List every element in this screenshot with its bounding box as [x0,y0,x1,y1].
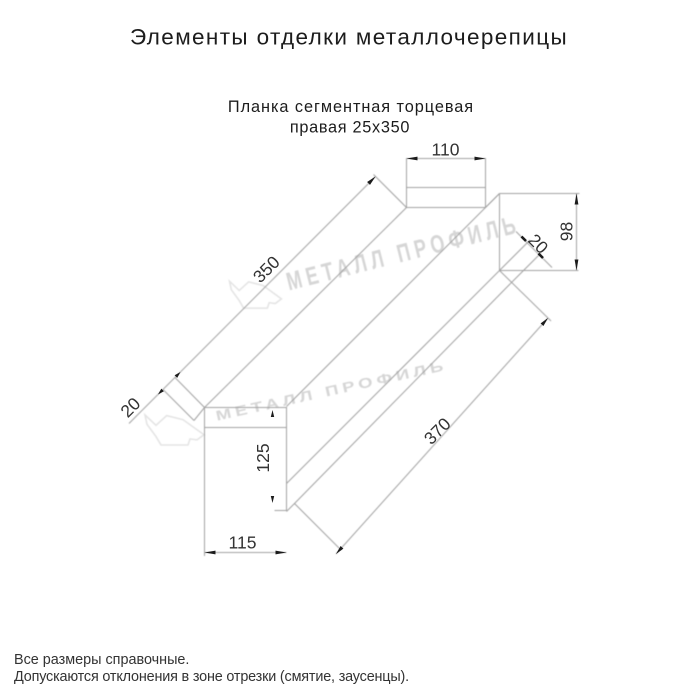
svg-text:правая 25х350: правая 25х350 [290,119,410,137]
svg-text:Все размеры справочные.: Все размеры справочные. [14,652,189,668]
svg-text:110: 110 [432,139,460,159]
svg-text:Допускаются отклонения в зоне: Допускаются отклонения в зоне отрезки (с… [14,669,409,685]
svg-text:125: 125 [253,443,273,472]
svg-text:370: 370 [420,413,455,448]
svg-text:20: 20 [524,230,552,258]
svg-text:350: 350 [249,252,284,287]
svg-text:МЕТАЛЛ ПРОФИЛЬ: МЕТАЛЛ ПРОФИЛЬ [214,358,448,424]
svg-text:Планка сегментная торцевая: Планка сегментная торцевая [228,98,474,116]
svg-text:Элементы отделки металлочерепи: Элементы отделки металлочерепицы [130,25,568,50]
svg-text:98: 98 [557,222,577,241]
svg-text:20: 20 [116,393,144,421]
svg-text:115: 115 [229,533,257,553]
